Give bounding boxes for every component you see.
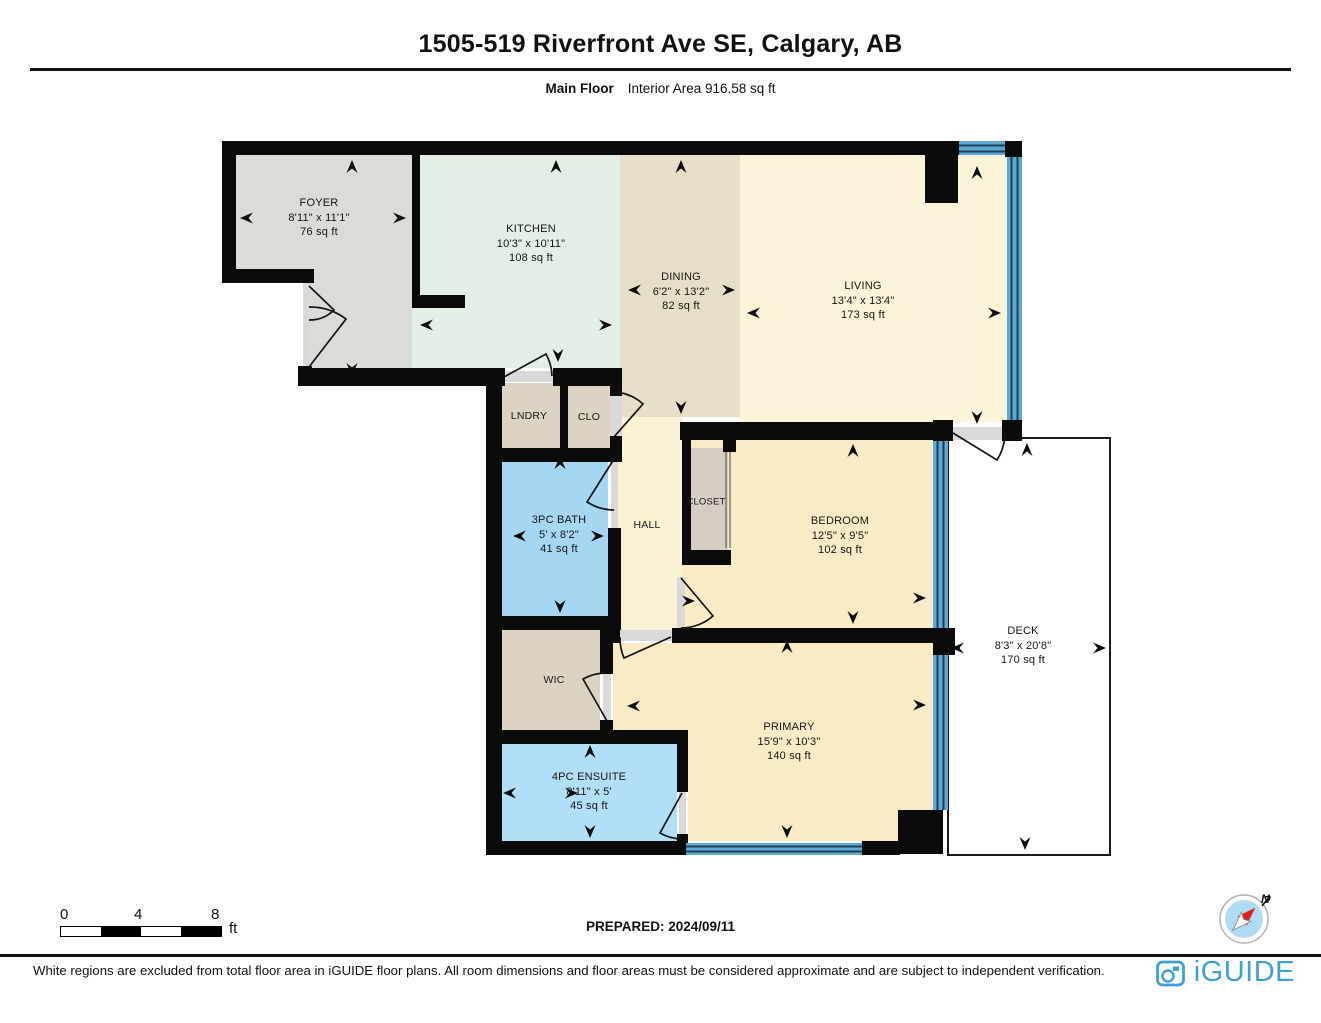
room-label-hall: HALL (633, 519, 660, 533)
room-dims: 6'2" x 13'2" (653, 285, 710, 300)
room-name: PRIMARY (758, 720, 821, 735)
window-primary-right (933, 655, 948, 810)
room-area: 102 sq ft (811, 543, 869, 558)
room-dims: 5' x 8'2" (532, 528, 587, 543)
compass-icon: N (1218, 889, 1278, 947)
room-label-dining: DINING 6'2" x 13'2" 82 sq ft (653, 270, 710, 314)
room-label-living: LIVING 13'4" x 13'4" 173 sq ft (832, 279, 895, 323)
room-name: LIVING (832, 279, 895, 294)
window-top (957, 141, 1007, 155)
room-name: 3PC BATH (532, 513, 587, 528)
window-primary-bottom (686, 843, 862, 855)
room-name: LNDRY (511, 410, 547, 424)
room-label-primary: PRIMARY 15'9" x 10'3" 140 sq ft (758, 720, 821, 764)
room-name: FOYER (288, 196, 349, 211)
room-area: 140 sq ft (758, 749, 821, 764)
room-name: DECK (995, 624, 1052, 639)
iguide-logo-icon (1155, 957, 1187, 989)
room-label-bedroom: BEDROOM 12'5" x 9'5" 102 sq ft (811, 514, 869, 558)
north-label: N (1261, 892, 1270, 906)
room-name: 4PC ENSUITE (552, 770, 626, 785)
room-name: BEDROOM (811, 514, 869, 529)
room-foyer-fill (236, 155, 412, 368)
room-area: 76 sq ft (288, 225, 349, 240)
room-name: KITCHEN (497, 222, 565, 237)
floorplan-page: 1505-519 Riverfront Ave SE, Calgary, AB … (0, 0, 1321, 1023)
brand-name: iGUIDE (1194, 956, 1295, 989)
room-dims: 12'5" x 9'5" (811, 529, 869, 544)
room-area: 41 sq ft (532, 542, 587, 557)
room-label-kitchen: KITCHEN 10'3" x 10'11" 108 sq ft (497, 222, 565, 266)
room-label-lndry: LNDRY (511, 410, 547, 424)
window-bedroom-right (933, 441, 948, 628)
room-area: 173 sq ft (832, 308, 895, 323)
room-dims: 8'11" x 11'1" (288, 211, 349, 226)
room-name: WIC (543, 674, 564, 688)
room-name: CLOSET (686, 497, 725, 510)
prepared-date: PREPARED: 2024/09/11 (0, 919, 1321, 934)
room-label-closet: CLOSET (686, 497, 725, 510)
room-name: HALL (633, 519, 660, 533)
window-living-right (1007, 155, 1022, 422)
room-area: 170 sq ft (995, 653, 1052, 668)
room-label-deck: DECK 8'3" x 20'8" 170 sq ft (995, 624, 1052, 668)
disclaimer-text: White regions are excluded from total fl… (33, 963, 1105, 978)
room-dims: 15'9" x 10'3" (758, 735, 821, 750)
room-label-bath: 3PC BATH 5' x 8'2" 41 sq ft (532, 513, 587, 557)
room-dims: 8'3" x 20'8" (995, 639, 1052, 654)
footer-divider (0, 954, 1321, 957)
room-label-wic: WIC (543, 674, 564, 688)
room-label-ensuite: 4PC ENSUITE 8'11" x 5' 45 sq ft (552, 770, 626, 814)
room-name: CLO (578, 411, 600, 425)
room-dims: 13'4" x 13'4" (832, 294, 895, 309)
room-label-clo: CLO (578, 411, 600, 425)
room-name: DINING (653, 270, 710, 285)
room-area: 82 sq ft (653, 299, 710, 314)
room-area: 45 sq ft (552, 799, 626, 814)
room-area: 108 sq ft (497, 251, 565, 266)
room-dims: 10'3" x 10'11" (497, 237, 565, 252)
room-label-foyer: FOYER 8'11" x 11'1" 76 sq ft (288, 196, 349, 240)
floor-plan-drawing (0, 0, 1321, 1023)
brand-logo: iGUIDE (1155, 956, 1295, 989)
room-dims: 8'11" x 5' (552, 785, 626, 800)
